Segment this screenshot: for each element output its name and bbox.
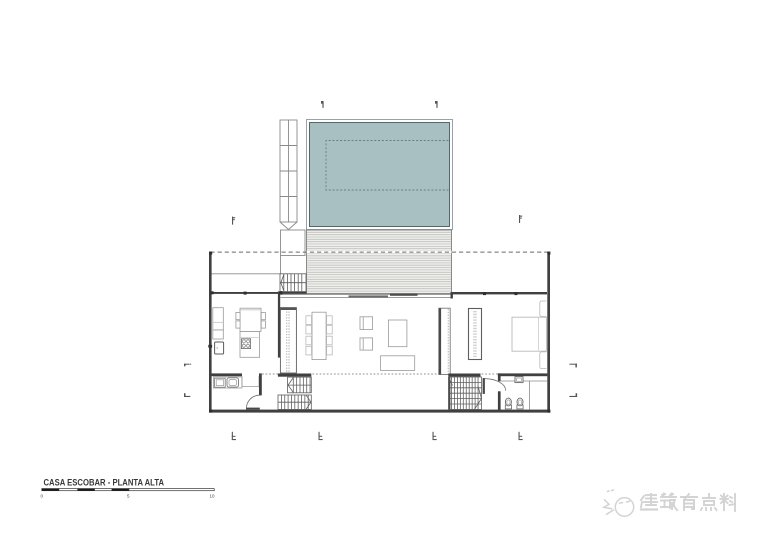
svg-text:CASA ESCOBAR - PLANTA ALTA: CASA ESCOBAR - PLANTA ALTA bbox=[44, 478, 165, 488]
svg-text:10: 10 bbox=[210, 494, 216, 499]
